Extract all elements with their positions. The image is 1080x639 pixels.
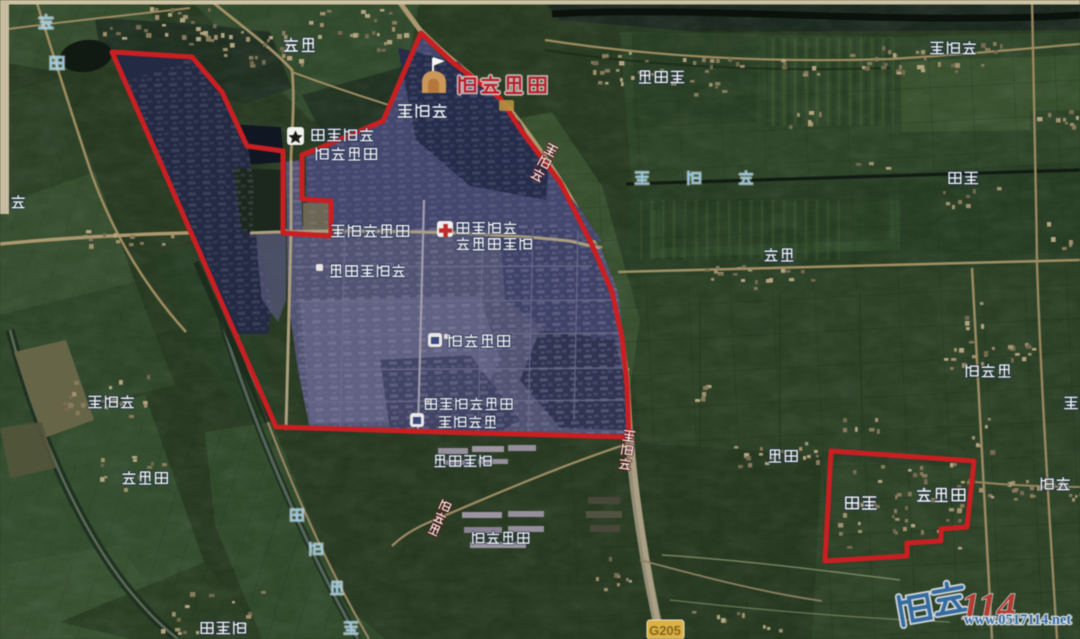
svg-text:G205: G205 xyxy=(649,623,681,638)
svg-text:www.0517114.net: www.0517114.net xyxy=(964,612,1071,628)
